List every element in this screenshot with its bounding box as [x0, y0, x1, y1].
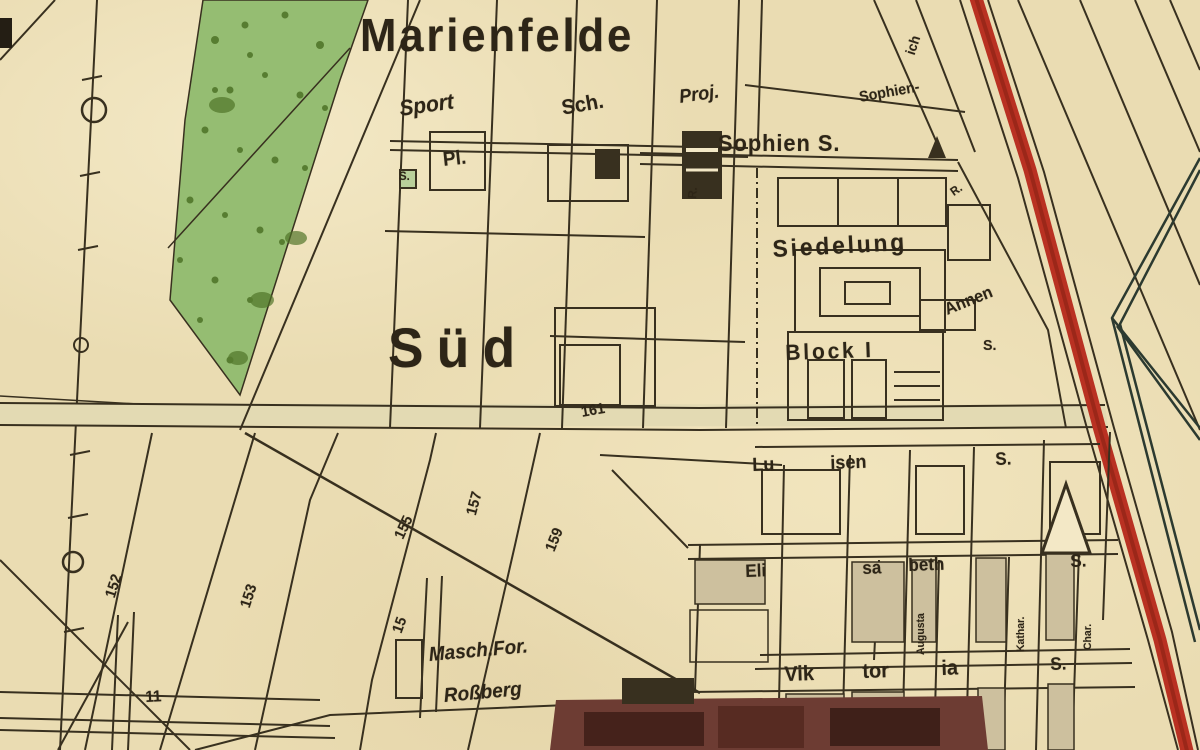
street-number-155: 155 [392, 513, 416, 541]
street-number-153: 153 [238, 582, 260, 609]
ich-street-fragment: ich [903, 34, 922, 57]
elisabeth-s-label: S. [1070, 551, 1087, 570]
street-number-157: 157 [464, 490, 485, 517]
luisen-s-label: S. [995, 449, 1012, 468]
rossberg-label: Roßberg [443, 679, 523, 706]
sport-s-label: S. [399, 170, 410, 182]
viktoria-vik-label: Vik [784, 663, 814, 685]
sport-platz-label: Pl. [442, 148, 467, 170]
map-canvas[interactable]: MarienfeldeSüdSportPl.S.Sch.Proj.Sophien… [0, 0, 1200, 750]
kathar-street-label: Kathar. [1016, 617, 1027, 652]
sophien-street-label: Sophien- [858, 79, 921, 104]
map-labels: MarienfeldeSüdSportPl.S.Sch.Proj.Sophien… [0, 0, 1200, 750]
district-sued: Süd [388, 320, 528, 376]
annen-s-label: S. [983, 338, 996, 353]
street-number-15: 15 [390, 615, 410, 635]
elisabeth-eli-label: Eli [745, 561, 767, 580]
r-mark-west: R. [686, 187, 699, 199]
block-i-label: Block I [785, 339, 874, 364]
masch-for-label: Masch.For. [428, 636, 529, 665]
r-mark-east: R. [948, 181, 964, 197]
road-number-161: 161 [580, 401, 606, 420]
town-title: Marienfelde [360, 12, 634, 58]
viktoria-ia-label: ia [941, 657, 958, 679]
viktoria-tor-label: tor [862, 660, 889, 682]
luisen-lu-label: Lu [752, 455, 775, 475]
annen-label: Annen [942, 283, 995, 318]
sport-label: Sport [398, 90, 455, 119]
road-number-11: 11 [145, 689, 162, 706]
elisabeth-sa-label: sa [862, 558, 882, 577]
street-number-152: 152 [103, 572, 125, 599]
viktoria-s-label: S. [1050, 654, 1067, 673]
siedelung-label: Siedelung [772, 231, 908, 262]
elisabeth-beth-label: beth [908, 555, 945, 574]
sophien-s-label: Sophien S. [718, 132, 840, 155]
luisen-isen-label: isen [830, 453, 867, 473]
charl-street-label: Char. [1083, 624, 1094, 650]
street-number-159: 159 [543, 526, 566, 554]
augusta-street-label: Augusta [916, 613, 927, 655]
proj-label: Proj. [678, 82, 720, 106]
school-label: Sch. [560, 91, 605, 119]
